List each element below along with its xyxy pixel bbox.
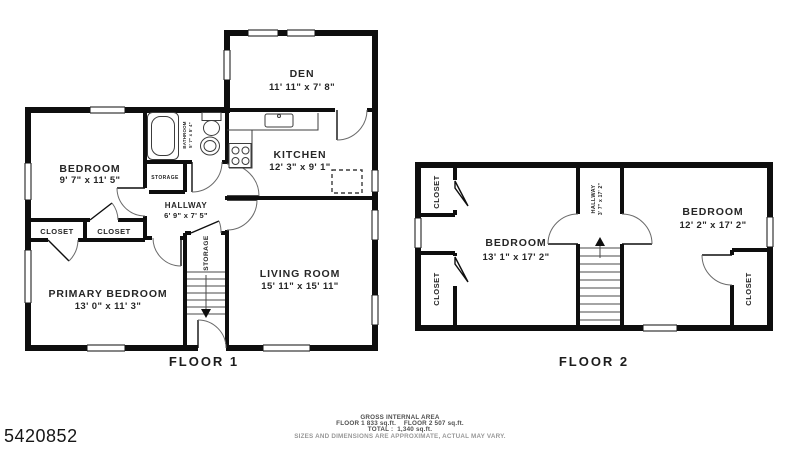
stairs-up-arrow [595,237,605,246]
area-disclaimer: SIZES AND DIMENSIONS ARE APPROXIMATE, AC… [250,434,550,440]
listing-id: 5420852 [4,426,78,447]
toilet [202,113,221,136]
room-label-storage-stairs: STORAGE [203,235,210,271]
window [372,210,378,240]
bathroom-sink [201,137,220,155]
room-label-kitchen: KITCHEN [274,149,327,161]
door [152,234,181,266]
room-label-bedroom: BEDROOM [59,163,120,175]
floor2-title: FLOOR 2 [539,354,649,369]
floor2-plan: CLOSET CLOSET CLOSET BEDROOM 13' 1" x 17… [410,155,780,345]
door [223,164,259,196]
door [90,203,118,224]
room-dims-bedroom: 9' 7" x 11' 5" [60,175,121,186]
window [224,50,230,80]
area-summary: GROSS INTERNAL AREA FLOOR 1 833 sq.ft. F… [250,415,550,440]
room-label-bathroom: BATHROOM [182,121,187,148]
door [702,255,736,285]
window [372,295,378,325]
window [25,250,31,303]
door [198,320,226,352]
room-label-bedroom-right: BEDROOM [682,206,743,218]
window [87,345,125,351]
room-dims-hallway: 6' 9" x 7' 5" [164,211,208,220]
door [451,180,468,210]
door [192,158,222,192]
window [90,107,125,113]
room-label-bedroom-left: BEDROOM [485,237,546,249]
window [643,325,677,331]
room-dims-bedroom-left: 13' 1" x 17' 2" [482,252,549,263]
door [618,214,652,244]
floor2-windows [415,217,773,331]
room-label-hallway-f2: HALLWAY [591,185,597,214]
room-dims-living-room: 15' 11" x 15' 11" [261,281,338,292]
door [117,188,149,216]
kitchen-sink [265,114,293,127]
floor2-labels: CLOSET CLOSET CLOSET BEDROOM 13' 1" x 17… [432,175,753,305]
room-dims-primary-bedroom: 13' 0" x 11' 3" [75,301,142,312]
door [191,221,221,237]
floor2-stairs [580,237,620,320]
window [287,30,315,36]
floor1-plan: BEDROOM 9' 7" x 11' 5" DEN 11' 11" x 7' … [15,25,400,375]
window [25,163,31,200]
room-label-closet-top-left: CLOSET [432,175,441,208]
door [451,256,468,286]
window [248,30,278,36]
room-dims-bedroom-right: 12' 2" x 17' 2" [679,220,746,231]
floor1-fixtures [148,113,363,194]
room-dims-kitchen: 12' 3" x 9' 1" [269,162,330,173]
door [48,236,78,261]
room-label-den: DEN [290,68,315,80]
room-dims-den: 11' 11" x 7' 8" [269,82,335,93]
room-label-hallway: HALLWAY [165,201,208,210]
room-label-living-room: LIVING ROOM [260,268,340,280]
room-label-closet-left: CLOSET [40,227,73,236]
floor1-stairs [187,272,225,318]
door [223,200,257,230]
window [372,170,378,192]
window [263,345,310,351]
window [415,218,421,248]
floor1-title: FLOOR 1 [149,354,259,369]
refrigerator [332,170,362,193]
room-dims-bathroom: 5' 7" x 5' 4" [188,122,193,148]
bathtub [148,113,179,160]
room-label-closet-bottom-right: CLOSET [744,272,753,305]
room-label-primary-bedroom: PRIMARY BEDROOM [48,288,167,300]
room-label-storage-small: STORAGE [151,175,179,181]
door [548,214,582,244]
floor1-labels: BEDROOM 9' 7" x 11' 5" DEN 11' 11" x 7' … [40,68,340,312]
stove [229,144,251,168]
window [767,217,773,247]
door [335,106,367,140]
room-label-closet-bottom-left: CLOSET [432,272,441,305]
room-label-closet-right: CLOSET [97,227,130,236]
room-dims-hallway-f2: 3' 7" x 17' 2" [598,182,604,215]
